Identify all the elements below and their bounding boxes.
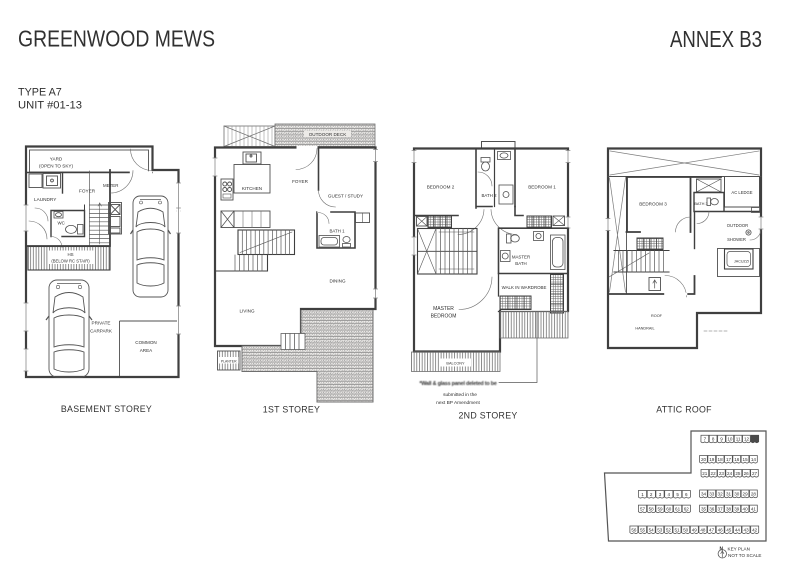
svg-text:8: 8 <box>712 437 715 442</box>
svg-text:MASTER: MASTER <box>512 255 530 260</box>
svg-text:28: 28 <box>751 491 757 496</box>
svg-text:6: 6 <box>685 492 688 497</box>
svg-text:60: 60 <box>666 506 672 511</box>
svg-text:GUEST / STUDY: GUEST / STUDY <box>328 194 363 199</box>
svg-text:JACUZZI: JACUZZI <box>734 260 749 264</box>
svg-text:(OPEN TO SKY): (OPEN TO SKY) <box>39 164 74 169</box>
svg-text:BASEMENT STOREY: BASEMENT STOREY <box>61 404 152 414</box>
svg-text:18: 18 <box>718 457 724 462</box>
svg-text:BALCONY: BALCONY <box>446 362 465 366</box>
svg-text:2ND STOREY: 2ND STOREY <box>458 411 517 421</box>
svg-text:BATH 1: BATH 1 <box>329 229 345 234</box>
svg-text:19: 19 <box>709 457 715 462</box>
svg-text:BATH 3: BATH 3 <box>694 201 707 206</box>
svg-text:32: 32 <box>718 491 724 496</box>
svg-text:52: 52 <box>666 527 672 532</box>
svg-text:(BELOW RC STAIR): (BELOW RC STAIR) <box>51 259 90 264</box>
svg-text:12: 12 <box>744 437 750 442</box>
svg-text:GREENWOOD MEWS: GREENWOOD MEWS <box>18 26 215 52</box>
svg-text:49: 49 <box>692 527 698 532</box>
svg-text:COMMON: COMMON <box>135 340 156 345</box>
svg-text:14: 14 <box>751 457 757 462</box>
svg-text:17: 17 <box>726 457 732 462</box>
svg-text:BEDROOM: BEDROOM <box>431 314 457 320</box>
svg-text:DINING: DINING <box>329 279 346 284</box>
svg-text:ROOF: ROOF <box>651 314 663 318</box>
svg-text:LIVING: LIVING <box>239 309 254 314</box>
svg-text:LAUNDRY: LAUNDRY <box>34 197 57 202</box>
svg-text:CARPARK: CARPARK <box>90 329 113 334</box>
svg-text:2: 2 <box>650 492 653 497</box>
svg-text:47: 47 <box>709 527 715 532</box>
svg-text:4: 4 <box>668 492 671 497</box>
svg-text:29: 29 <box>743 491 749 496</box>
svg-text:37: 37 <box>718 506 724 511</box>
svg-text:TYPE A7: TYPE A7 <box>18 87 62 99</box>
svg-text:OUTDOOR DECK: OUTDOOR DECK <box>309 132 347 137</box>
svg-text:62: 62 <box>684 506 690 511</box>
svg-text:50: 50 <box>683 527 689 532</box>
svg-text:58: 58 <box>649 506 655 511</box>
svg-text:PLANTER: PLANTER <box>221 360 237 364</box>
svg-text:BATH: BATH <box>515 261 526 266</box>
svg-text:*Wall & glass panel deleted to: *Wall & glass panel deleted to be <box>419 381 497 387</box>
svg-text:METER: METER <box>103 183 118 188</box>
svg-text:24: 24 <box>727 471 733 476</box>
svg-text:BATH 2: BATH 2 <box>481 193 497 198</box>
svg-text:35: 35 <box>701 506 707 511</box>
svg-text:54: 54 <box>649 527 655 532</box>
svg-text:PRIVATE: PRIVATE <box>92 321 111 326</box>
svg-text:57: 57 <box>640 506 646 511</box>
svg-text:WC: WC <box>58 221 65 226</box>
svg-text:11: 11 <box>736 437 741 442</box>
svg-text:41: 41 <box>751 506 757 511</box>
svg-text:next BP Amendment: next BP Amendment <box>436 400 480 406</box>
svg-text:AC LEDGE: AC LEDGE <box>731 190 752 195</box>
svg-text:55: 55 <box>640 527 646 532</box>
svg-text:48: 48 <box>700 527 706 532</box>
svg-text:27: 27 <box>752 471 758 476</box>
svg-text:MASTER: MASTER <box>433 306 454 312</box>
svg-text:3: 3 <box>659 492 662 497</box>
svg-text:HANDRAIL: HANDRAIL <box>635 327 654 331</box>
svg-text:BEDROOM 1: BEDROOM 1 <box>528 185 556 190</box>
svg-text:ATTIC ROOF: ATTIC ROOF <box>656 405 712 415</box>
svg-text:40: 40 <box>743 506 749 511</box>
svg-text:KEY PLAN: KEY PLAN <box>728 547 750 552</box>
svg-text:submitted in the: submitted in the <box>443 392 477 398</box>
svg-text:5: 5 <box>676 492 679 497</box>
svg-text:42: 42 <box>752 527 758 532</box>
svg-text:59: 59 <box>657 506 663 511</box>
svg-text:WALK IN WARDROBE: WALK IN WARDROBE <box>502 285 547 290</box>
svg-text:7: 7 <box>704 437 707 442</box>
svg-text:46: 46 <box>718 527 724 532</box>
svg-text:34: 34 <box>701 491 707 496</box>
svg-text:56: 56 <box>631 527 637 532</box>
svg-text:26: 26 <box>744 471 750 476</box>
svg-text:21: 21 <box>702 471 708 476</box>
svg-text:YARD: YARD <box>50 157 63 162</box>
svg-text:HS: HS <box>67 252 73 257</box>
svg-text:16: 16 <box>734 457 740 462</box>
svg-text:BEDROOM 3: BEDROOM 3 <box>639 202 667 207</box>
svg-text:36: 36 <box>709 506 715 511</box>
svg-text:38: 38 <box>726 506 732 511</box>
svg-text:43: 43 <box>744 527 750 532</box>
svg-text:FOYER: FOYER <box>292 179 309 184</box>
svg-text:44: 44 <box>735 527 741 532</box>
svg-text:30: 30 <box>734 491 740 496</box>
svg-text:25: 25 <box>735 471 741 476</box>
svg-text:15: 15 <box>743 457 749 462</box>
svg-text:9: 9 <box>720 437 723 442</box>
svg-text:1ST STOREY: 1ST STOREY <box>263 405 320 415</box>
svg-text:NOT TO SCALE: NOT TO SCALE <box>728 553 761 558</box>
svg-text:51: 51 <box>674 527 680 532</box>
svg-text:BEDROOM 2: BEDROOM 2 <box>427 185 455 190</box>
svg-text:10: 10 <box>727 437 733 442</box>
svg-text:UNIT #01-13: UNIT #01-13 <box>18 100 82 112</box>
svg-text:FOYER: FOYER <box>79 189 96 194</box>
svg-text:ANNEX B3: ANNEX B3 <box>670 26 762 52</box>
svg-text:23: 23 <box>719 471 725 476</box>
svg-text:33: 33 <box>709 491 715 496</box>
svg-text:KITCHEN: KITCHEN <box>242 186 262 191</box>
svg-text:OUTDOOR: OUTDOOR <box>727 223 748 228</box>
svg-text:39: 39 <box>734 506 740 511</box>
svg-text:45: 45 <box>726 527 732 532</box>
svg-text:SHOWER: SHOWER <box>727 237 746 242</box>
svg-text:31: 31 <box>726 491 732 496</box>
svg-text:53: 53 <box>657 527 663 532</box>
svg-text:22: 22 <box>711 471 717 476</box>
svg-text:61: 61 <box>675 506 681 511</box>
svg-text:AREA: AREA <box>140 348 153 353</box>
svg-text:20: 20 <box>701 457 707 462</box>
svg-text:1: 1 <box>641 492 644 497</box>
